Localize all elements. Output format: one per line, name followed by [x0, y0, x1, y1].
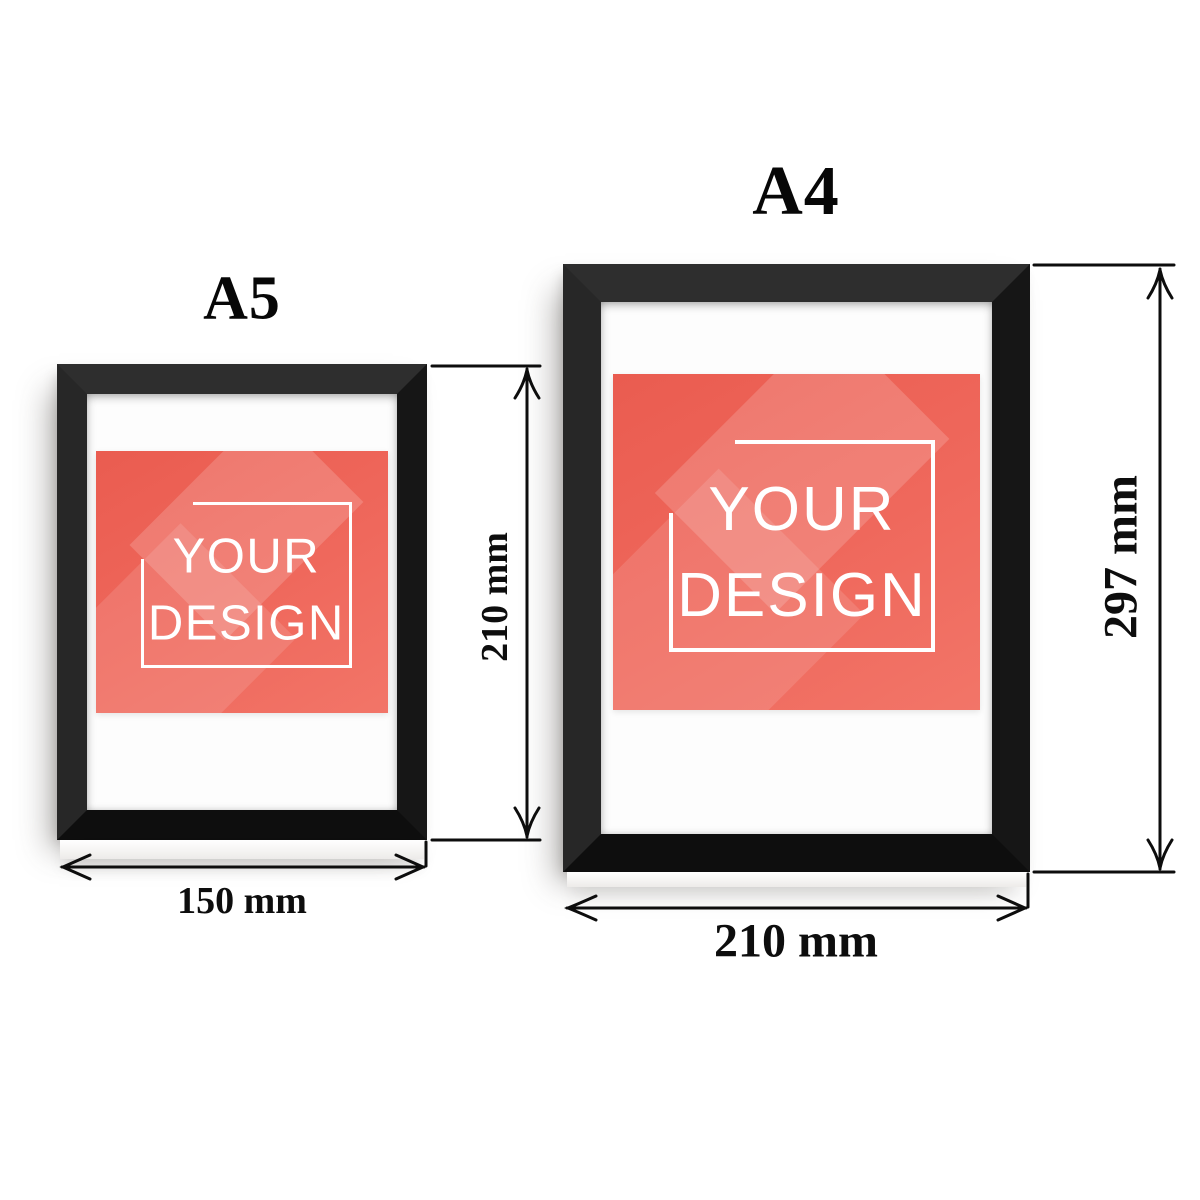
a5-design-text-line1: YOUR	[173, 532, 321, 581]
a5-picture-frame: YOUR DESIGN	[57, 364, 427, 840]
a5-height-arrow-up	[515, 370, 539, 398]
wall-background: A5 A4 YOUR DESIGN	[0, 0, 1200, 1200]
a4-width-arrow-left	[568, 896, 596, 920]
a4-width-arrow-right	[998, 896, 1025, 920]
a5-width-label: 150 mm	[177, 879, 307, 923]
a4-frame-bottom-edge	[567, 872, 1026, 887]
a4-outline-left	[669, 513, 673, 652]
a4-outline-right	[931, 440, 935, 652]
a4-outline-bottom	[669, 648, 935, 652]
a4-height-arrow-down	[1148, 840, 1172, 868]
a5-height-label: 210 mm	[473, 532, 517, 662]
a5-height-arrow-down	[515, 808, 539, 836]
a5-design-text-line2: DESIGN	[148, 599, 345, 648]
a5-artwork: YOUR DESIGN	[96, 451, 387, 713]
a5-frame-bottom-edge	[60, 840, 424, 859]
a4-size-title: A4	[752, 152, 840, 232]
a5-mat: YOUR DESIGN	[87, 394, 397, 810]
a4-height-arrow-up	[1148, 270, 1172, 298]
a4-height-label: 297 mm	[1094, 475, 1149, 639]
a4-mat: YOUR DESIGN	[601, 302, 992, 834]
a4-picture-frame: YOUR DESIGN	[563, 264, 1030, 872]
a4-width-label: 210 mm	[714, 914, 878, 969]
a5-outline-bottom	[141, 665, 352, 668]
a4-design-text-line1: YOUR	[708, 479, 895, 541]
a5-outline-top	[193, 502, 352, 505]
a4-artwork: YOUR DESIGN	[613, 374, 981, 709]
a5-outline-right	[349, 502, 352, 668]
a5-outline-left	[141, 559, 144, 668]
a5-size-title: A5	[203, 264, 281, 335]
a4-design-text-line2: DESIGN	[677, 565, 927, 627]
a4-outline-top	[735, 440, 935, 444]
